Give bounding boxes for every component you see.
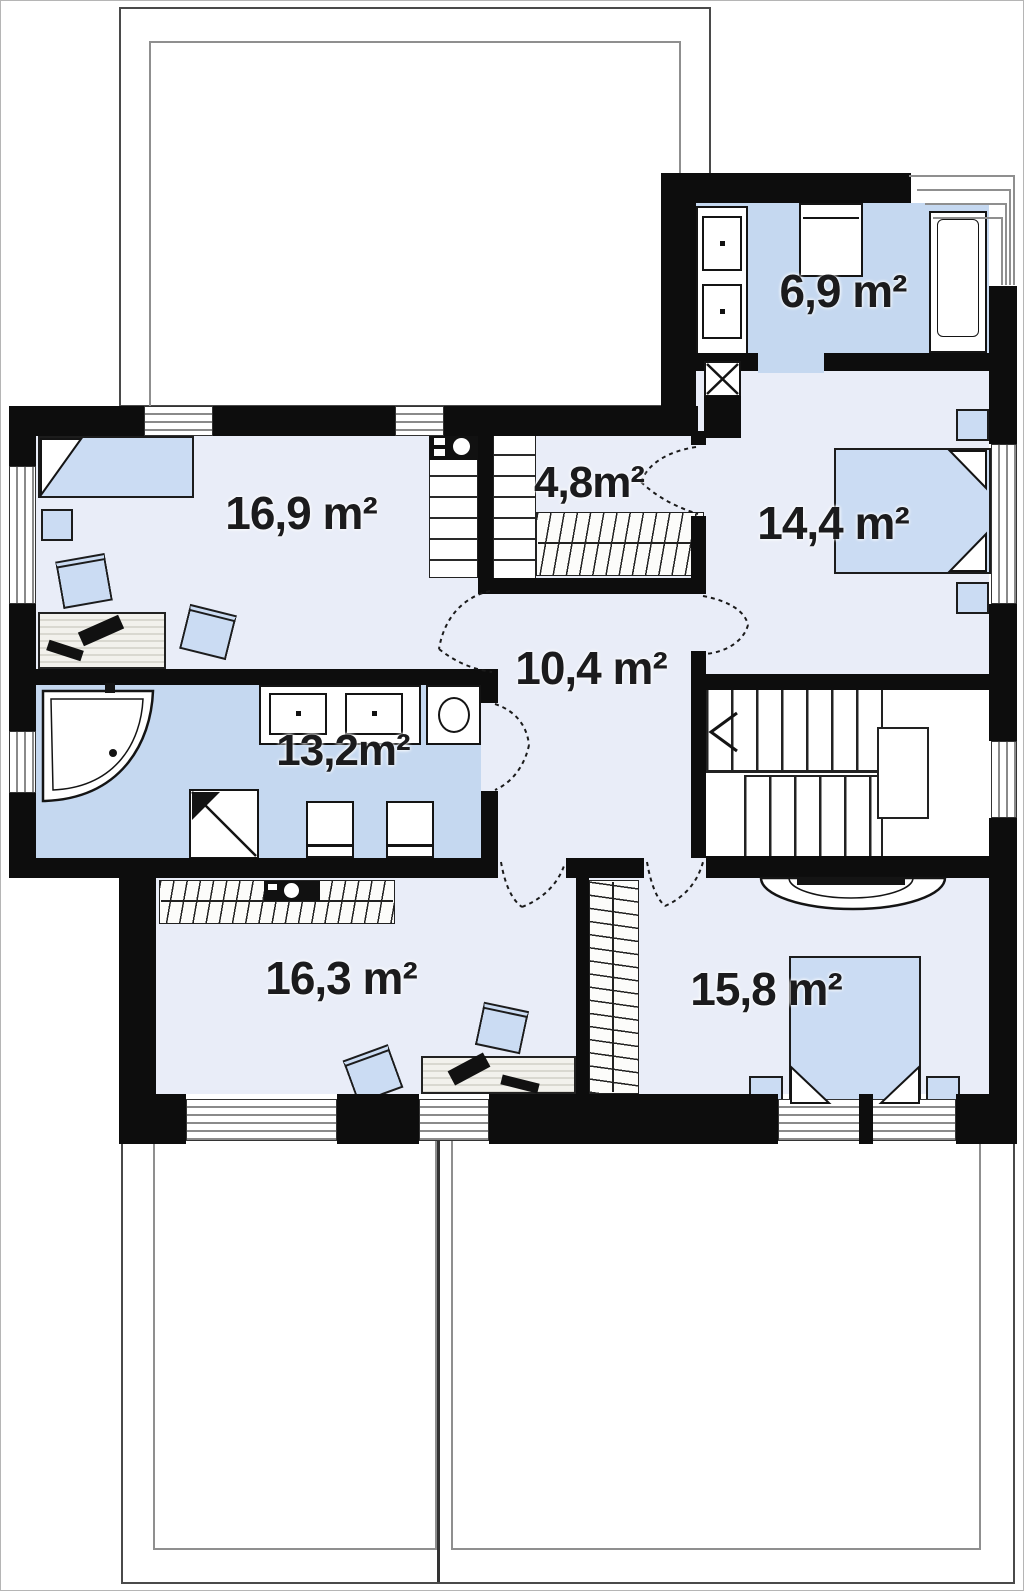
vent-shaft-x-icon: [707, 364, 738, 394]
door-arc-room-bottom-left: [501, 862, 565, 907]
arch-niche-icon: [761, 878, 945, 909]
room-label-bedroom-left: 16,9 m²: [225, 486, 377, 540]
door-arc-wardrobe: [641, 447, 698, 514]
corner-bathtub-icon: [43, 683, 153, 801]
room-label-room-bottom-left: 16,3 m²: [265, 951, 417, 1005]
room-label-bedroom-right: 14,4 m²: [757, 496, 909, 550]
room-label-bathroom-ensuite: 6,9 m²: [780, 264, 907, 318]
door-arc-bedroom-bottom: [647, 862, 703, 906]
room-label-wardrobe: 4,8m²: [534, 458, 644, 508]
stairs-arrow-icon: [711, 713, 737, 751]
door-arc-bedroom-left: [439, 591, 492, 672]
floor-plan: 6,9 m² 16,9 m² 4,8m² 14,4 m² 10,4 m² 13,…: [0, 0, 1024, 1591]
door-arc-bathroom-main: [495, 704, 529, 790]
room-label-bathroom-main: 13,2m²: [276, 726, 409, 776]
plan-detail-overlay: [1, 1, 1024, 1591]
room-label-hall: 10,4 m²: [515, 641, 667, 695]
door-arc-bedroom-right: [703, 596, 748, 654]
shower-glyph: [192, 792, 256, 856]
room-label-bedroom-bottom: 15,8 m²: [690, 962, 842, 1016]
